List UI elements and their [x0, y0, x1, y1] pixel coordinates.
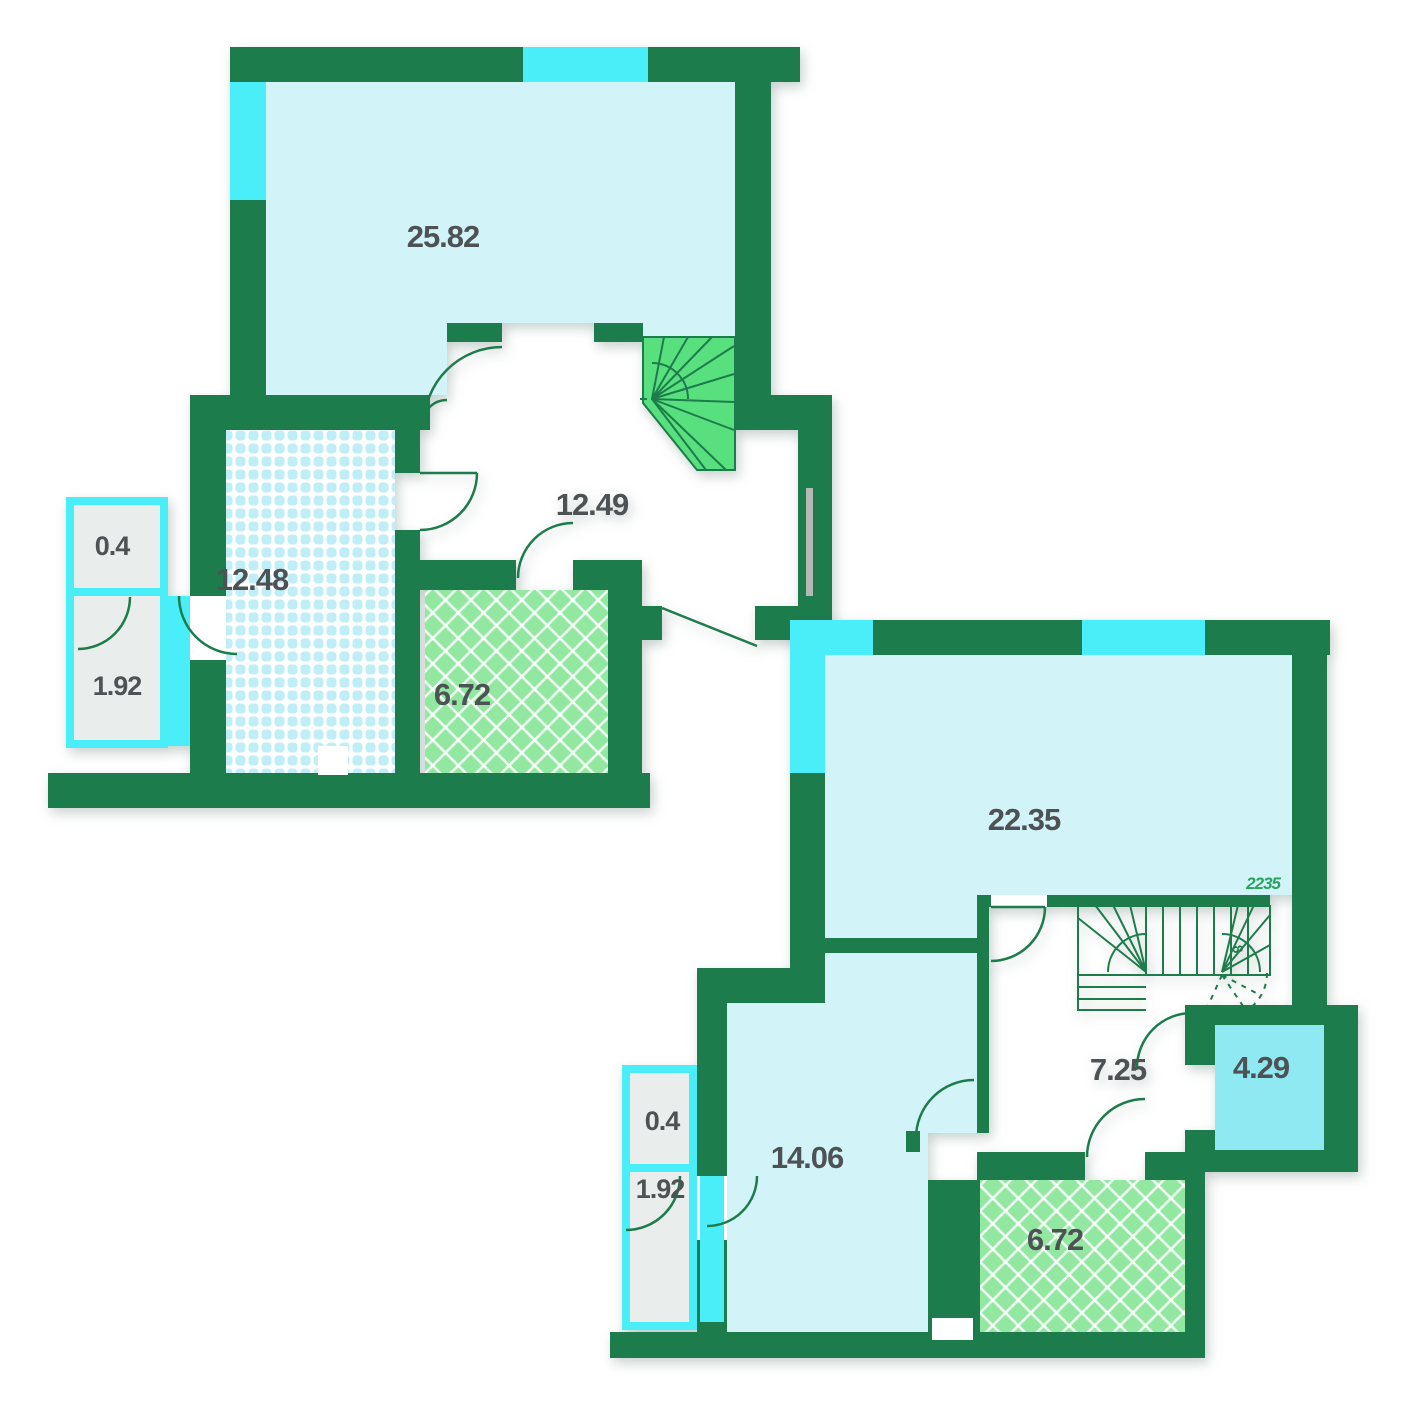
window-left	[230, 82, 266, 200]
vent-notch	[318, 746, 348, 775]
door-living-to-hall	[991, 907, 1045, 961]
room-label-hall: 7.25	[1090, 1052, 1147, 1087]
room-label-bathroom: 6.72	[1027, 1222, 1083, 1257]
entrance-threshold	[806, 488, 813, 596]
lower-floor-plan: 8	[600, 600, 1390, 1375]
room-label-bathroom: 6.72	[434, 677, 490, 712]
balcony-door-opening	[190, 596, 226, 660]
room-label-hall: 12.49	[556, 487, 629, 522]
room-label-living: 22.35	[988, 802, 1061, 837]
room-label-balcony-04: 0.4	[645, 1106, 681, 1136]
watermark: 2235	[1245, 874, 1281, 893]
room-label-storage: 4.29	[1233, 1050, 1290, 1085]
room-label-bedroom: 14.06	[771, 1140, 844, 1175]
room-label-balcony-192: 1.92	[93, 671, 142, 701]
window-balcony	[165, 596, 190, 746]
room-label-balcony-04: 0.4	[95, 531, 131, 561]
room-label-living: 25.82	[407, 219, 480, 254]
floorplan-canvas: 25.82 12.49 12.48 6.72 0.4 1.92	[0, 0, 1410, 1410]
balcony-divider	[622, 1164, 697, 1172]
staircase: 8	[1078, 905, 1270, 1018]
window-top	[1082, 620, 1205, 655]
window-balcony	[700, 1176, 724, 1322]
room-label-bedroom: 12.48	[216, 562, 289, 597]
door-hall-to-bathroom	[518, 523, 573, 578]
storage-floor	[1215, 1025, 1324, 1150]
balcony-divider	[66, 588, 168, 596]
window-corner-top	[790, 620, 873, 655]
vent-notch	[932, 1318, 973, 1340]
window-top	[523, 47, 648, 82]
stair-door-opening	[991, 895, 1047, 907]
door-hall-to-bedroom	[420, 473, 477, 530]
room-label-balcony-192: 1.92	[636, 1174, 685, 1204]
door-hall-to-bathroom	[1087, 1099, 1145, 1157]
spiral-stair	[640, 337, 735, 470]
window-corner-left	[790, 655, 825, 773]
